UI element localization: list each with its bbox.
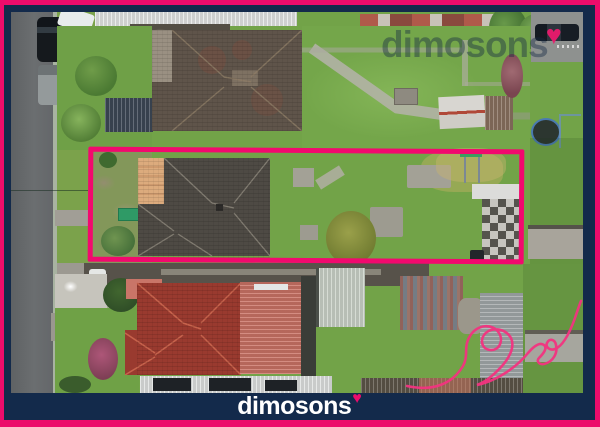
branded-photo-frame: dimosons♥ dimosons ♥ (0, 0, 600, 427)
skylight (254, 284, 288, 290)
property-boundary-outline (88, 147, 525, 265)
watermark-text: dimosons (381, 24, 548, 65)
watermark-heart-icon: ♥ (546, 20, 561, 51)
footer-heart-icon: ♥ (352, 390, 362, 408)
garden-shed-roof (438, 95, 486, 129)
aerial-photo: dimosons♥ (11, 12, 583, 393)
neighbor-north-roof-texture (152, 30, 302, 131)
shadow-gap (301, 276, 316, 378)
salmon-extension-roof (240, 282, 301, 374)
solar-panel (265, 380, 297, 391)
garden-bush (75, 56, 117, 96)
rusty-shed-roof (485, 96, 513, 130)
heart-squiggle-graphic (404, 298, 583, 393)
neighbor-east-slab (528, 225, 583, 259)
garden-bush (61, 104, 101, 142)
neighbor-south-roof-texture (137, 283, 241, 375)
solar-panel (153, 378, 191, 391)
round-hedge (59, 376, 91, 393)
watermark: dimosons♥ (381, 24, 561, 66)
carport-roof (105, 98, 153, 132)
footer-logo-text: dimosons (237, 394, 351, 419)
navy-inner-border: dimosons♥ dimosons ♥ (4, 5, 595, 420)
footer-brand-bar: dimosons ♥ (4, 393, 595, 420)
mint-outbuilding-roof (316, 268, 365, 327)
pink-flowering-bush (88, 338, 118, 380)
brick-planter (394, 88, 418, 105)
solar-panel (209, 378, 251, 391)
